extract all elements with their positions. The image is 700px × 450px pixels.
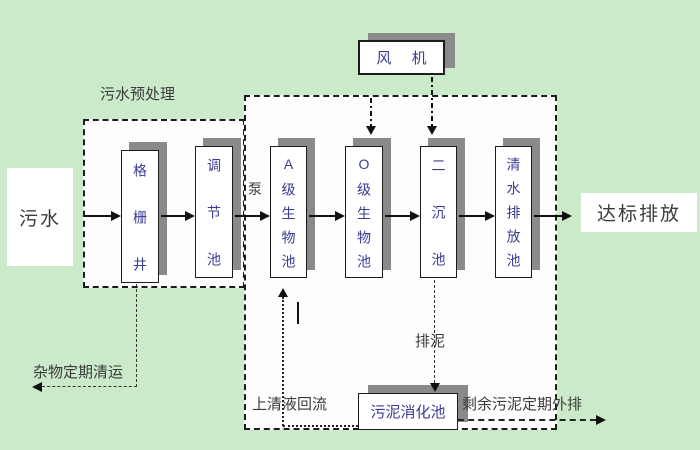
o-bio-label: O级生物池	[357, 156, 371, 278]
flow-arrow-1	[185, 211, 195, 221]
excess-sludge-arrow	[596, 415, 606, 425]
node-o-bio: O级生物池	[345, 146, 383, 278]
flow-line-1	[161, 215, 185, 217]
flow-line-4	[385, 215, 410, 217]
sludge-arrow	[430, 383, 440, 392]
regulating-label: 调节池	[207, 158, 221, 299]
clean-water-label: 清水排放池	[507, 157, 521, 277]
flow-line-3	[309, 215, 335, 217]
flow-line-2	[235, 215, 260, 217]
flow-arrow-5	[485, 211, 495, 221]
flow-arrow-4	[410, 211, 420, 221]
supernatant-hline	[283, 425, 358, 427]
flow-arrow-inflow	[111, 211, 121, 221]
flow-arrow-2	[260, 211, 270, 221]
grid-well-label: 格栅井	[133, 163, 147, 304]
debris-hline	[42, 386, 137, 387]
air-arrow-to-secondary	[427, 126, 437, 135]
supernatant-arrow	[278, 288, 288, 297]
debris-removal-label: 杂物定期清运	[33, 364, 123, 381]
node-inflow: 污水	[7, 168, 73, 266]
node-grid-well: 格栅井	[121, 150, 159, 283]
node-fan: 风 机	[358, 40, 445, 75]
flow-line-outflow	[534, 215, 562, 217]
supernatant-reflux-label: 上清液回流	[252, 396, 327, 413]
flow-arrow-3	[335, 211, 345, 221]
pump-label: 泵	[248, 181, 262, 197]
excess-sludge-line	[458, 419, 596, 421]
node-a-bio: A级生物池	[270, 146, 307, 278]
node-secondary-sedimentation: 二沉池	[420, 146, 457, 278]
secondary-label: 二沉池	[432, 158, 446, 299]
flow-arrow-outflow	[562, 211, 572, 221]
node-digestion: 污泥消化池	[358, 393, 458, 430]
node-clean-water: 清水排放池	[495, 146, 532, 278]
diagram-canvas: 污水 格栅井 调节池 A级生物池 O级生物池 二沉池 清水排放池 风 机 污泥消…	[0, 0, 700, 450]
node-regulating: 调节池	[195, 146, 233, 278]
digestion-label: 污泥消化池	[370, 401, 445, 422]
node-outflow: 达标排放	[581, 193, 697, 232]
inflow-label: 污水	[19, 204, 61, 231]
excess-sludge-label: 剩余污泥定期外排	[462, 396, 582, 413]
outflow-label: 达标排放	[597, 199, 681, 226]
air-line-to-secondary	[431, 77, 433, 126]
sludge-discharge-label: 排泥	[415, 333, 445, 350]
flow-line-inflow	[83, 215, 111, 217]
flow-line-5	[459, 215, 485, 217]
air-arrow-to-o-bio	[366, 126, 376, 135]
air-line-to-o-bio	[370, 98, 372, 126]
valve-tick	[297, 302, 299, 324]
debris-arrow	[32, 382, 42, 392]
fan-label: 风 机	[376, 47, 434, 68]
a-bio-label: A级生物池	[282, 156, 296, 278]
pretreatment-label: 污水预处理	[100, 86, 175, 103]
